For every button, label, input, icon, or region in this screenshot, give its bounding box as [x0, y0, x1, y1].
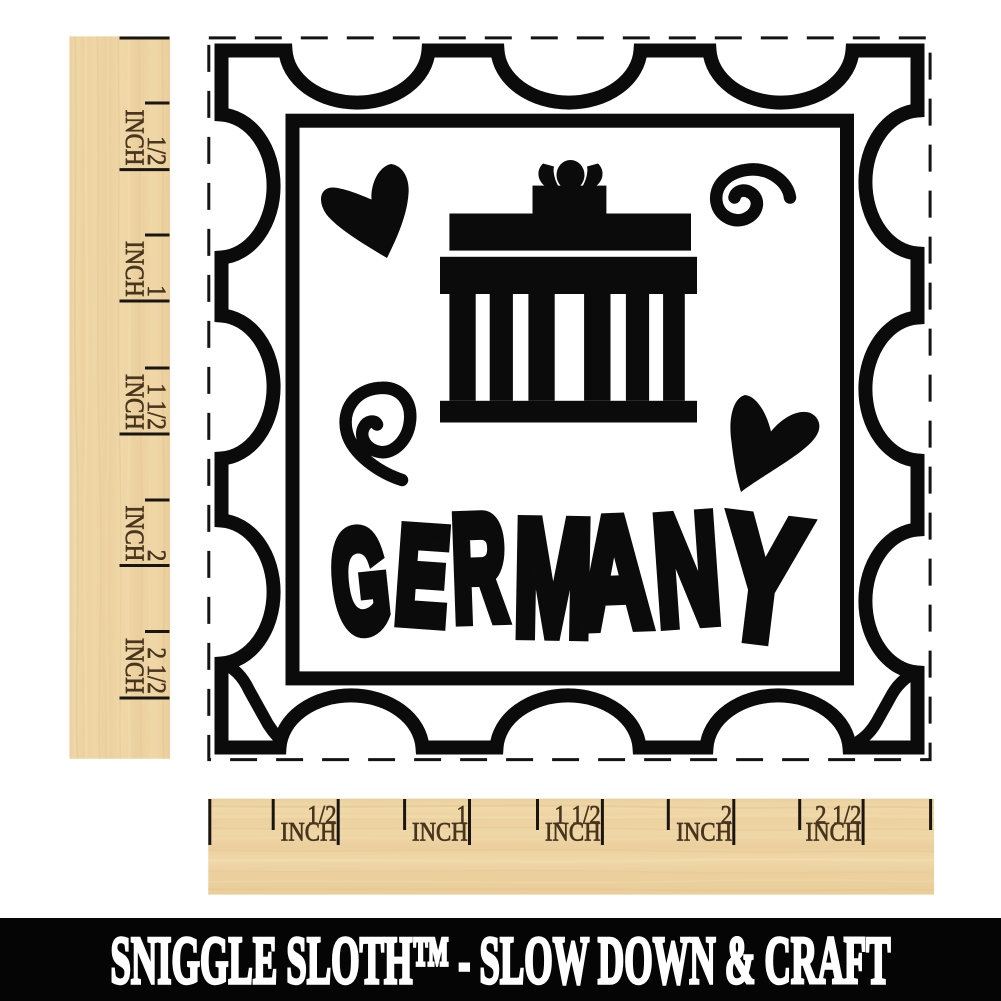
svg-text:A: A [576, 485, 654, 660]
svg-text:N: N [648, 481, 725, 657]
svg-text:E: E [391, 498, 453, 653]
svg-text:SNIGGLE SLOTH™ - SLOW DOWN & C: SNIGGLE SLOTH™ - SLOW DOWN & CRAFT [111, 922, 891, 998]
svg-text:R: R [449, 483, 509, 652]
